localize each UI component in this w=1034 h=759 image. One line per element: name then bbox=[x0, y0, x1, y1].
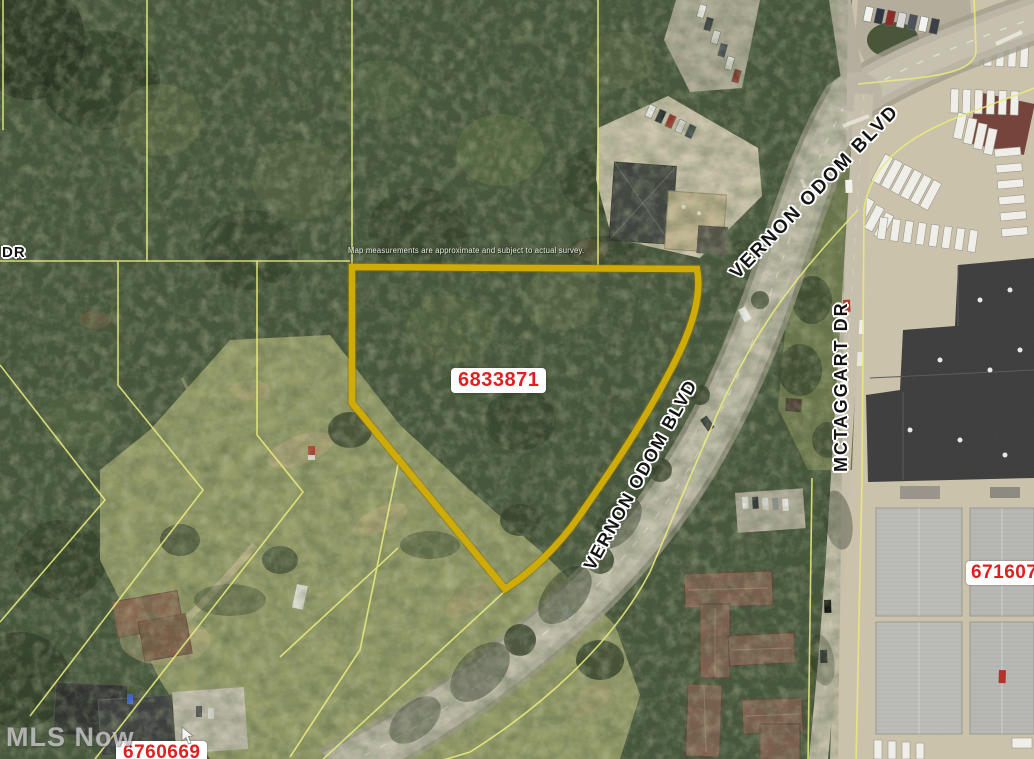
cursor-arrow-icon bbox=[180, 726, 196, 746]
parcel-label-671607: 671607 bbox=[966, 561, 1034, 585]
aerial-parcel-map: Map measurements are approximate and sub… bbox=[0, 0, 1034, 759]
street-label-mctaggart-dr: MCTAGGART DR bbox=[831, 302, 851, 472]
mls-now-watermark: MLS Now bbox=[6, 722, 135, 753]
street-label-dr-partial: DR bbox=[2, 244, 26, 261]
parcel-label-subject: 6833871 bbox=[451, 368, 546, 393]
map-disclaimer: Map measurements are approximate and sub… bbox=[348, 246, 584, 255]
